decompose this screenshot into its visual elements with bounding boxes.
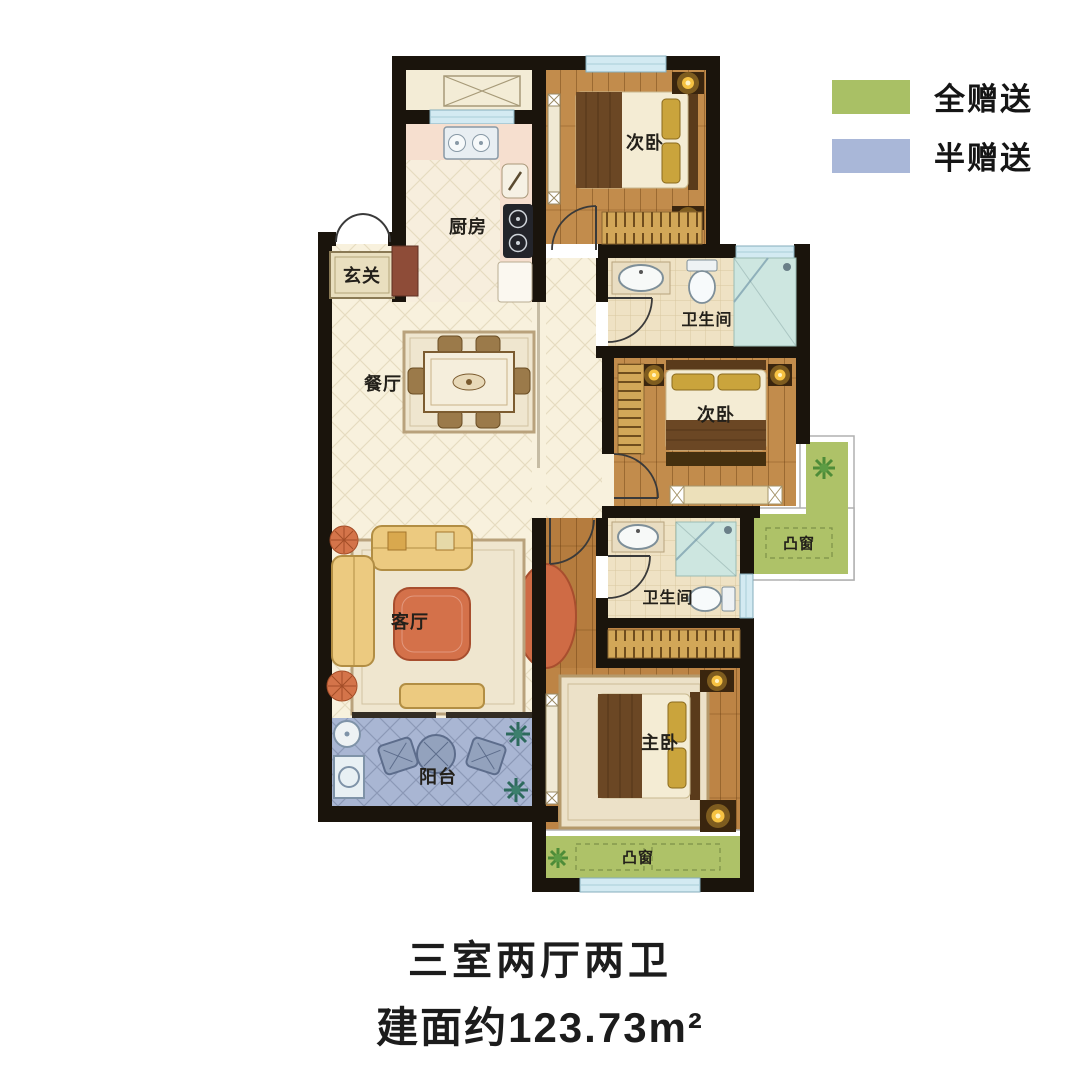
sink bbox=[619, 265, 663, 291]
room-label-bedroom-mid: 次卧 bbox=[697, 401, 735, 427]
fridge bbox=[498, 262, 532, 302]
legend-swatch-half-gift bbox=[832, 139, 910, 173]
room-label-master-bedroom: 主卧 bbox=[641, 729, 679, 755]
lamp-icon bbox=[706, 804, 730, 828]
room-label-kitchen: 厨房 bbox=[449, 213, 487, 239]
toilet bbox=[689, 587, 735, 611]
room-label-dining: 餐厅 bbox=[364, 370, 402, 396]
plant-icon bbox=[548, 848, 568, 868]
window-seat bbox=[670, 486, 782, 504]
side-plant bbox=[327, 671, 357, 701]
sink bbox=[618, 525, 658, 549]
legend-row-half-gift: 半赠送 bbox=[832, 133, 1033, 178]
lamp-icon bbox=[707, 671, 727, 691]
legend: 全赠送 半赠送 bbox=[832, 74, 1033, 178]
title-block: 三室两厅两卫 建面约123.73m² bbox=[0, 928, 1080, 1055]
shower bbox=[734, 258, 796, 346]
lamp-icon bbox=[770, 365, 790, 385]
floorplan-canvas: 玄关 厨房 次卧 卫生间 餐厅 次卧 凸窗 客厅 卫生间 主卧 阳台 凸窗 全赠… bbox=[0, 0, 1080, 1080]
entry-door-swing bbox=[363, 214, 390, 242]
shoe-cabinet bbox=[392, 246, 418, 296]
legend-label-full-gift: 全赠送 bbox=[934, 74, 1033, 119]
lamp-icon bbox=[677, 72, 699, 94]
room-label-balcony: 阳台 bbox=[419, 763, 457, 789]
room-label-bathroom-bottom: 卫生间 bbox=[642, 584, 693, 608]
toilet bbox=[687, 260, 717, 303]
lamp-icon bbox=[644, 365, 664, 385]
layout-title: 三室两厅两卫 bbox=[0, 928, 1080, 986]
stove bbox=[503, 204, 533, 258]
dining-set bbox=[404, 332, 534, 432]
washing-machine bbox=[334, 756, 364, 798]
kitchen-sink bbox=[444, 127, 498, 159]
area-title: 建面约123.73m² bbox=[0, 994, 1080, 1055]
room-label-bathroom-top: 卫生间 bbox=[681, 306, 732, 330]
closet bbox=[608, 630, 740, 658]
side-plant bbox=[330, 526, 358, 554]
room-label-entry: 玄关 bbox=[343, 262, 381, 288]
plant-icon bbox=[813, 457, 835, 479]
legend-row-full-gift: 全赠送 bbox=[832, 74, 1033, 119]
cutting-board bbox=[502, 164, 528, 198]
room-label-living: 客厅 bbox=[391, 608, 429, 634]
bench bbox=[546, 694, 558, 804]
room-label-bay-window-mid: 凸窗 bbox=[783, 533, 815, 554]
floor-edge-line bbox=[537, 302, 540, 468]
legend-label-half-gift: 半赠送 bbox=[934, 133, 1033, 178]
entry-door-swing bbox=[336, 214, 363, 242]
wardrobe bbox=[602, 212, 702, 244]
room-label-bedroom-top: 次卧 bbox=[626, 129, 664, 155]
shower bbox=[676, 522, 736, 576]
wardrobe bbox=[618, 364, 644, 454]
legend-swatch-full-gift bbox=[832, 80, 910, 114]
room-label-bay-window-bottom: 凸窗 bbox=[622, 847, 654, 868]
